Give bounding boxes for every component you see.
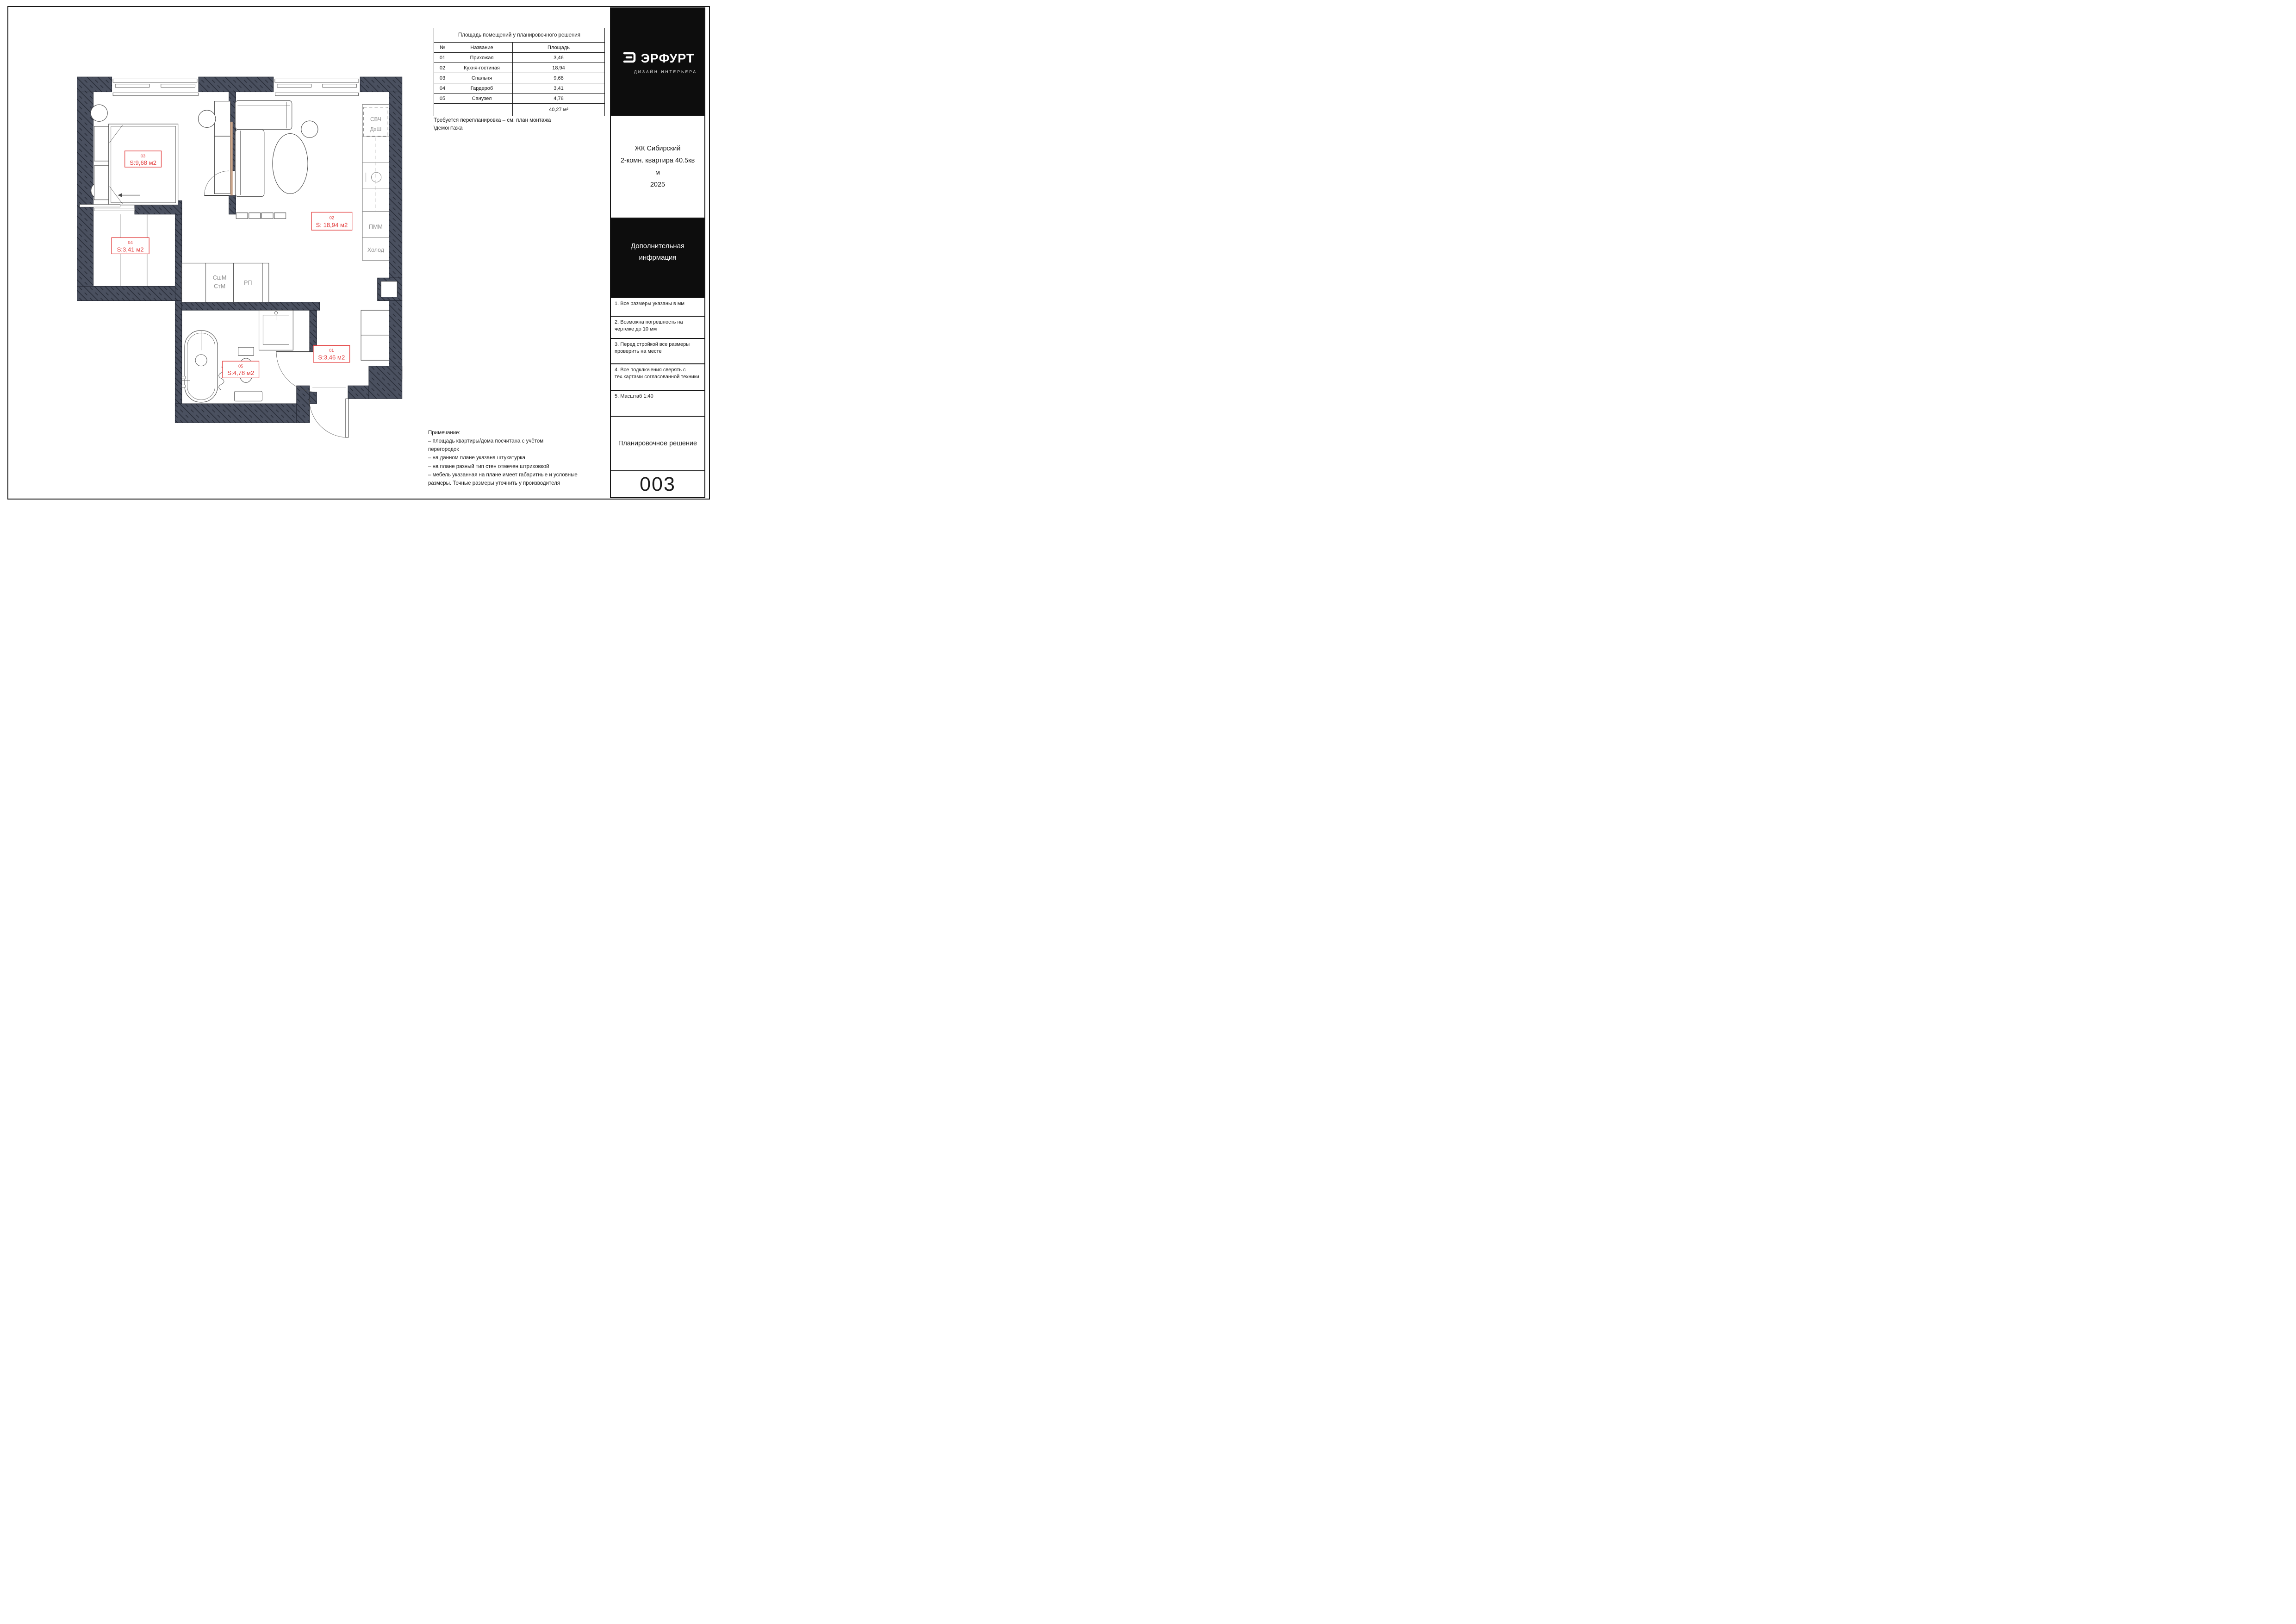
additional-info-line: инфрмация: [631, 252, 684, 264]
nightstand: [94, 126, 111, 161]
title-block: ЭРФУРТ ДИЗАЙН ИНТЕРЬЕРА ЖК Сибирский 2-к…: [610, 7, 705, 498]
note-title: Примечание:: [428, 429, 618, 437]
room-area-table: Площадь помещений у планировочного решен…: [434, 28, 605, 116]
wall-left: [77, 92, 93, 301]
chair-icon: [301, 121, 318, 137]
toilet-tank: [238, 347, 254, 355]
wall-niche: [381, 281, 397, 297]
wall-top-right: [360, 77, 402, 92]
wall-tap-icon: [182, 376, 185, 379]
wall-living-bath: [182, 302, 320, 310]
room-number: 02: [330, 215, 334, 220]
brand-logo-icon: [621, 49, 638, 68]
window-sill: [277, 84, 311, 87]
cell-area: 9,68: [513, 73, 605, 83]
table-row: 05 Санузел 4,78: [434, 94, 605, 104]
living-furniture: [235, 100, 318, 219]
curtain-line: [275, 93, 359, 95]
cell-name: Санузел: [451, 94, 513, 104]
titleblock-note-3: 3. Перед стройкой все размеры проверить …: [611, 339, 704, 364]
additional-info-line: Дополнительная: [631, 240, 684, 252]
cell-num: 05: [434, 94, 451, 104]
titleblock-note-5: 5. Масштаб 1:40: [611, 391, 704, 417]
dining-table: [273, 134, 308, 194]
bedroom-cabinet: [214, 101, 230, 194]
wall-right: [389, 92, 402, 278]
washer-label: СтМ: [214, 283, 225, 290]
project-line: ЖК Сибирский: [621, 143, 695, 155]
room-number: 05: [238, 364, 243, 369]
cell-num: 02: [434, 63, 451, 73]
sheet-number: 003: [611, 471, 704, 497]
header-area: Площадь: [513, 43, 605, 53]
cell-area: 3,41: [513, 83, 605, 94]
table-row: 04 Гардероб 3,41: [434, 83, 605, 94]
room-area: S:3,46 м2: [318, 354, 345, 361]
wall-entry-right-block: [348, 386, 369, 399]
table-header-row: № Название Площадь: [434, 43, 605, 53]
wall-hall-corner: [369, 366, 402, 399]
titleblock-note-1: 1. Все размеры указаны в мм: [611, 298, 704, 317]
wall-wardrobe-right: [175, 200, 181, 300]
note-line: – площадь квартиры/дома посчитана с учёт…: [428, 437, 618, 445]
window-frame: [275, 79, 359, 82]
rp-label: РП: [244, 280, 252, 286]
brand-box: ЭРФУРТ ДИЗАЙН ИНТЕРЬЕРА: [611, 8, 704, 116]
room-area: S:9,68 м2: [130, 159, 156, 166]
radiator: [249, 213, 261, 219]
brand-tagline: ДИЗАЙН ИНТЕРЬЕРА: [634, 69, 697, 74]
room-area: S:4,78 м2: [227, 369, 254, 376]
room-number: 01: [329, 348, 334, 353]
hall-cabinet: [361, 335, 389, 360]
header-num: №: [434, 43, 451, 53]
room-number: 04: [128, 240, 132, 245]
note-line: размеры. Точные размеры уточнить у произ…: [428, 479, 618, 487]
additional-info-box: Дополнительная инфрмация: [611, 219, 704, 298]
header-name: Название: [451, 43, 513, 53]
radiator: [261, 213, 273, 219]
sofa: [235, 100, 292, 129]
cell-name: Спальня: [451, 73, 513, 83]
titleblock-note-4: 4. Все подключения сверять с тех.картами…: [611, 364, 704, 391]
dishwasher-label: ПММ: [369, 224, 383, 230]
cell-empty: [451, 104, 513, 116]
note-line: перегородок: [428, 445, 618, 454]
window-frame: [113, 79, 197, 82]
window-sill: [161, 84, 195, 87]
wall-partition-lower: [229, 195, 236, 214]
project-line: м: [621, 167, 695, 179]
replanning-remark: Требуется перепланировка – см. план монт…: [434, 117, 551, 133]
document-title: Планировочное решение: [611, 417, 704, 471]
cell-name: Кухня-гостиная: [451, 63, 513, 73]
note-line: – мебель указанная на плане имеет габари…: [428, 471, 618, 479]
cell-area: 18,94: [513, 63, 605, 73]
wall-tap-icon: [182, 385, 185, 387]
room-label-01: 01 S:3,46 м2: [313, 345, 350, 362]
table-title: Площадь помещений у планировочного решен…: [434, 28, 605, 43]
wall-wardrobe-bottom: [77, 286, 182, 300]
wall-bath-hall-lower: [310, 392, 317, 404]
microwave-size-label: ДхШ: [370, 126, 381, 132]
total-area: 40,27 м²: [513, 104, 605, 116]
titleblock-note-2: 2. Возможна погрешность на чертеже до 10…: [611, 317, 704, 339]
floor-plan-svg: СВЧ ДхШ ПММ Холод СшМ СтМ РП 03 S:9,68 м…: [77, 75, 417, 451]
dryer-label: СшМ: [213, 275, 226, 281]
sofa: [235, 130, 264, 197]
brand-name: ЭРФУРТ: [641, 51, 695, 66]
room-number: 03: [141, 154, 145, 158]
curtain-line: [113, 93, 198, 95]
cell-num: 01: [434, 53, 451, 63]
hall-cabinet: [361, 310, 389, 335]
sliding-door: [94, 208, 135, 211]
radiator: [274, 213, 286, 219]
entry-door-arc: [309, 399, 348, 437]
note-block: Примечание: – площадь квартиры/дома посч…: [428, 429, 618, 487]
fridge-label: Холод: [367, 247, 385, 253]
project-info: ЖК Сибирский 2-комн. квартира 40.5кв м 2…: [611, 116, 704, 219]
floor-plan: СВЧ ДхШ ПММ Холод СшМ СтМ РП 03 S:9,68 м…: [77, 75, 417, 451]
bathroom-fixtures: [182, 310, 293, 402]
room-area: S:3,41 м2: [117, 246, 144, 253]
cell-empty: [434, 104, 451, 116]
table-row: 03 Спальня 9,68: [434, 73, 605, 83]
microwave-label: СВЧ: [370, 116, 381, 123]
cell-num: 03: [434, 73, 451, 83]
bath-mat: [234, 391, 262, 401]
cell-num: 04: [434, 83, 451, 94]
table-row: 02 Кухня-гостиная 18,94: [434, 63, 605, 73]
radiator: [236, 213, 248, 219]
remark-line: Требуется перепланировка – см. план монт…: [434, 117, 551, 125]
cell-area: 4,78: [513, 94, 605, 104]
table-title-row: Площадь помещений у планировочного решен…: [434, 28, 605, 43]
hallway-furniture: [361, 310, 389, 360]
sliding-door: [80, 205, 120, 207]
room-label-04: 04 S:3,41 м2: [112, 237, 149, 254]
window-sill: [323, 84, 357, 87]
drawing-sheet: Площадь помещений у планировочного решен…: [0, 0, 717, 507]
room-area: S: 18,94 м2: [316, 221, 348, 228]
wall-bath-bottom: [175, 404, 309, 423]
wall-top-left: [77, 77, 112, 92]
table-row: 01 Прихожая 3,46: [434, 53, 605, 63]
wall-entry-left-block: [297, 386, 310, 423]
chair-icon: [198, 110, 215, 127]
pouf-icon: [91, 105, 107, 121]
note-line: – на данном плане указана штукатурка: [428, 454, 618, 462]
window-sill: [115, 84, 149, 87]
project-line: 2-комн. квартира 40.5кв: [621, 155, 695, 167]
wood-panel: [230, 122, 233, 195]
cell-name: Гардероб: [451, 83, 513, 94]
utility-closets: [182, 263, 269, 302]
cell-name: Прихожая: [451, 53, 513, 63]
room-label-03: 03 S:9,68 м2: [125, 151, 162, 167]
cell-area: 3,46: [513, 53, 605, 63]
project-line: 2025: [621, 179, 695, 191]
wall-top-mid: [199, 77, 274, 92]
note-line: – на плане разный тип стен отмечен штрих…: [428, 462, 618, 471]
nightstand: [94, 166, 111, 200]
room-label-05: 05 S:4,78 м2: [223, 361, 259, 378]
table-total-row: 40,27 м²: [434, 104, 605, 116]
remark-line: \демонтажа: [434, 125, 551, 132]
room-label-02: 02 S: 18,94 м2: [311, 212, 352, 230]
closet-row: [182, 263, 269, 302]
entry-door-leaf: [346, 399, 348, 437]
